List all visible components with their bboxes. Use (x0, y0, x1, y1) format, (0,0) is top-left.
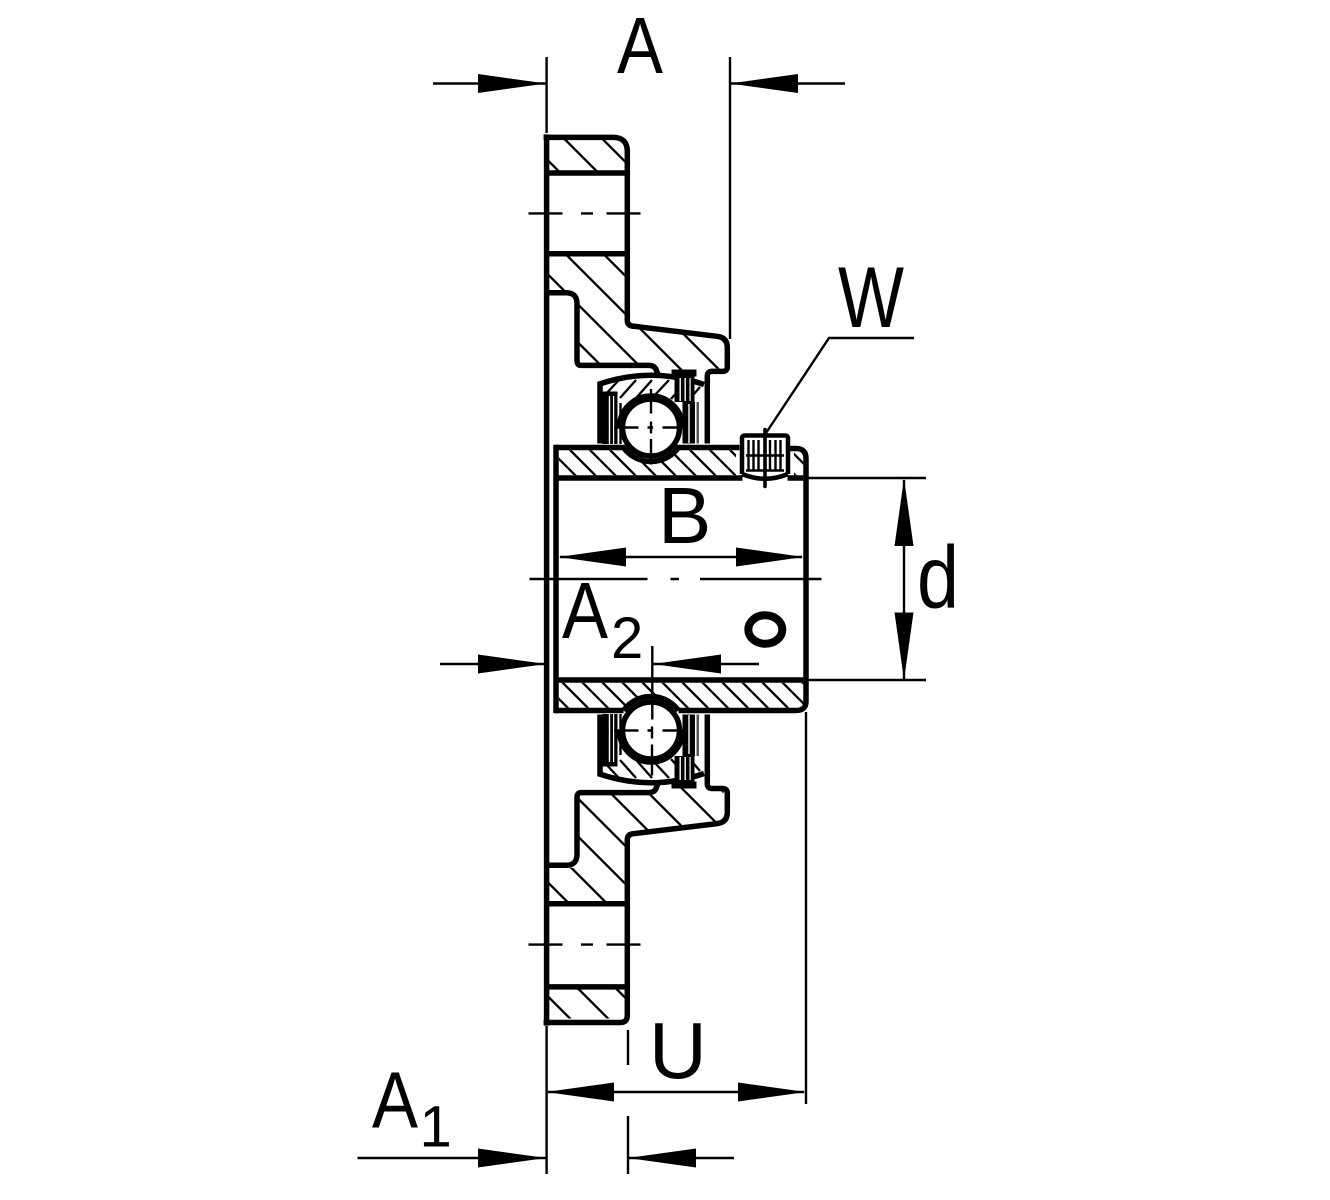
svg-text:1: 1 (420, 1095, 452, 1160)
svg-text:A: A (617, 1, 664, 90)
svg-text:A: A (372, 1056, 419, 1145)
svg-text:A: A (562, 566, 609, 655)
svg-text:2: 2 (611, 606, 643, 671)
svg-text:B: B (658, 471, 711, 560)
svg-text:W: W (838, 250, 904, 346)
svg-text:U: U (649, 1006, 707, 1095)
svg-text:d: d (917, 528, 959, 627)
